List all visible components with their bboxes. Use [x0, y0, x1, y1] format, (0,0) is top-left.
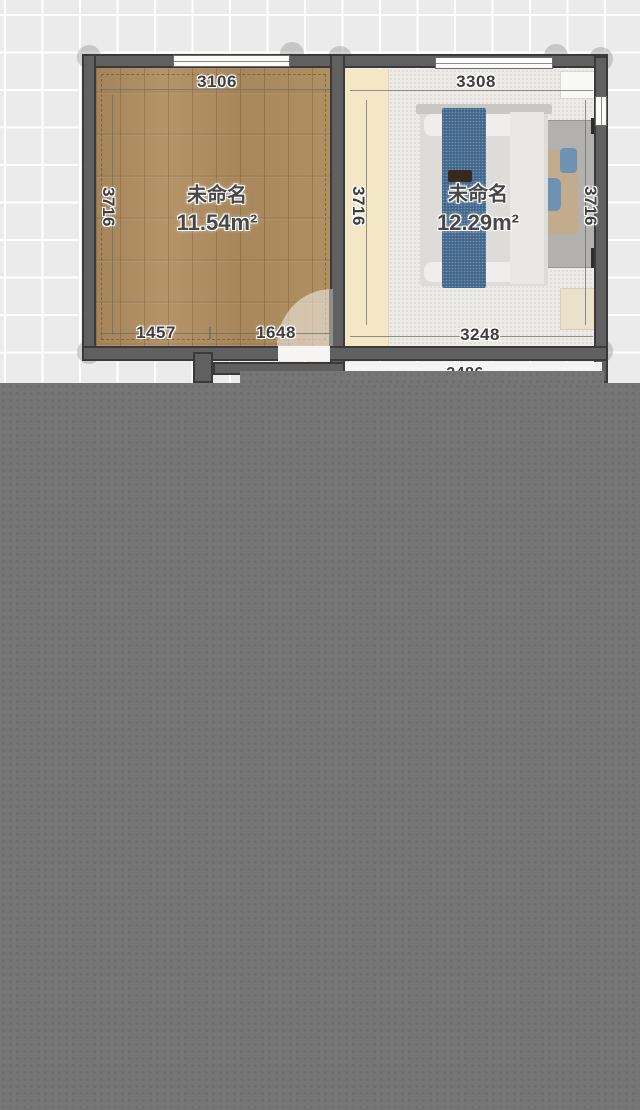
dimension-label[interactable]: 3716	[98, 187, 118, 227]
door-leaf[interactable]	[329, 289, 333, 346]
room-left-name[interactable]: 未命名	[187, 179, 247, 208]
lower-wall-stub[interactable]	[193, 352, 213, 383]
dimension-label[interactable]: 3716	[580, 186, 600, 226]
room-right-name[interactable]: 未命名	[448, 178, 508, 207]
window[interactable]	[595, 96, 607, 126]
desk-cushion[interactable]	[560, 148, 577, 173]
dimension-label[interactable]: 3716	[348, 186, 368, 226]
dimension-label[interactable]: 1648	[256, 323, 296, 343]
room-left-area: 11.54m²	[177, 210, 258, 236]
window[interactable]	[435, 57, 553, 69]
wall-left[interactable]	[82, 54, 96, 361]
dimension-label[interactable]: 3248	[460, 325, 500, 345]
dimension-label[interactable]: 1457	[136, 323, 176, 343]
window[interactable]	[173, 55, 290, 67]
floorplan-canvas[interactable]: 2486 3106 3716 1457 1648 3308 3716 3716 …	[0, 0, 640, 1110]
dimension-label[interactable]: 3308	[456, 72, 496, 92]
door-opening[interactable]	[278, 346, 330, 361]
dimension-tick	[209, 327, 211, 339]
bed-blanket-fold	[510, 112, 544, 284]
dimension-label[interactable]: 3106	[197, 72, 237, 92]
wall-bottom[interactable]	[82, 346, 608, 361]
room-right-area: 12.29m²	[437, 210, 519, 236]
gray-overlay	[0, 383, 640, 1110]
nightstand[interactable]	[560, 71, 598, 99]
